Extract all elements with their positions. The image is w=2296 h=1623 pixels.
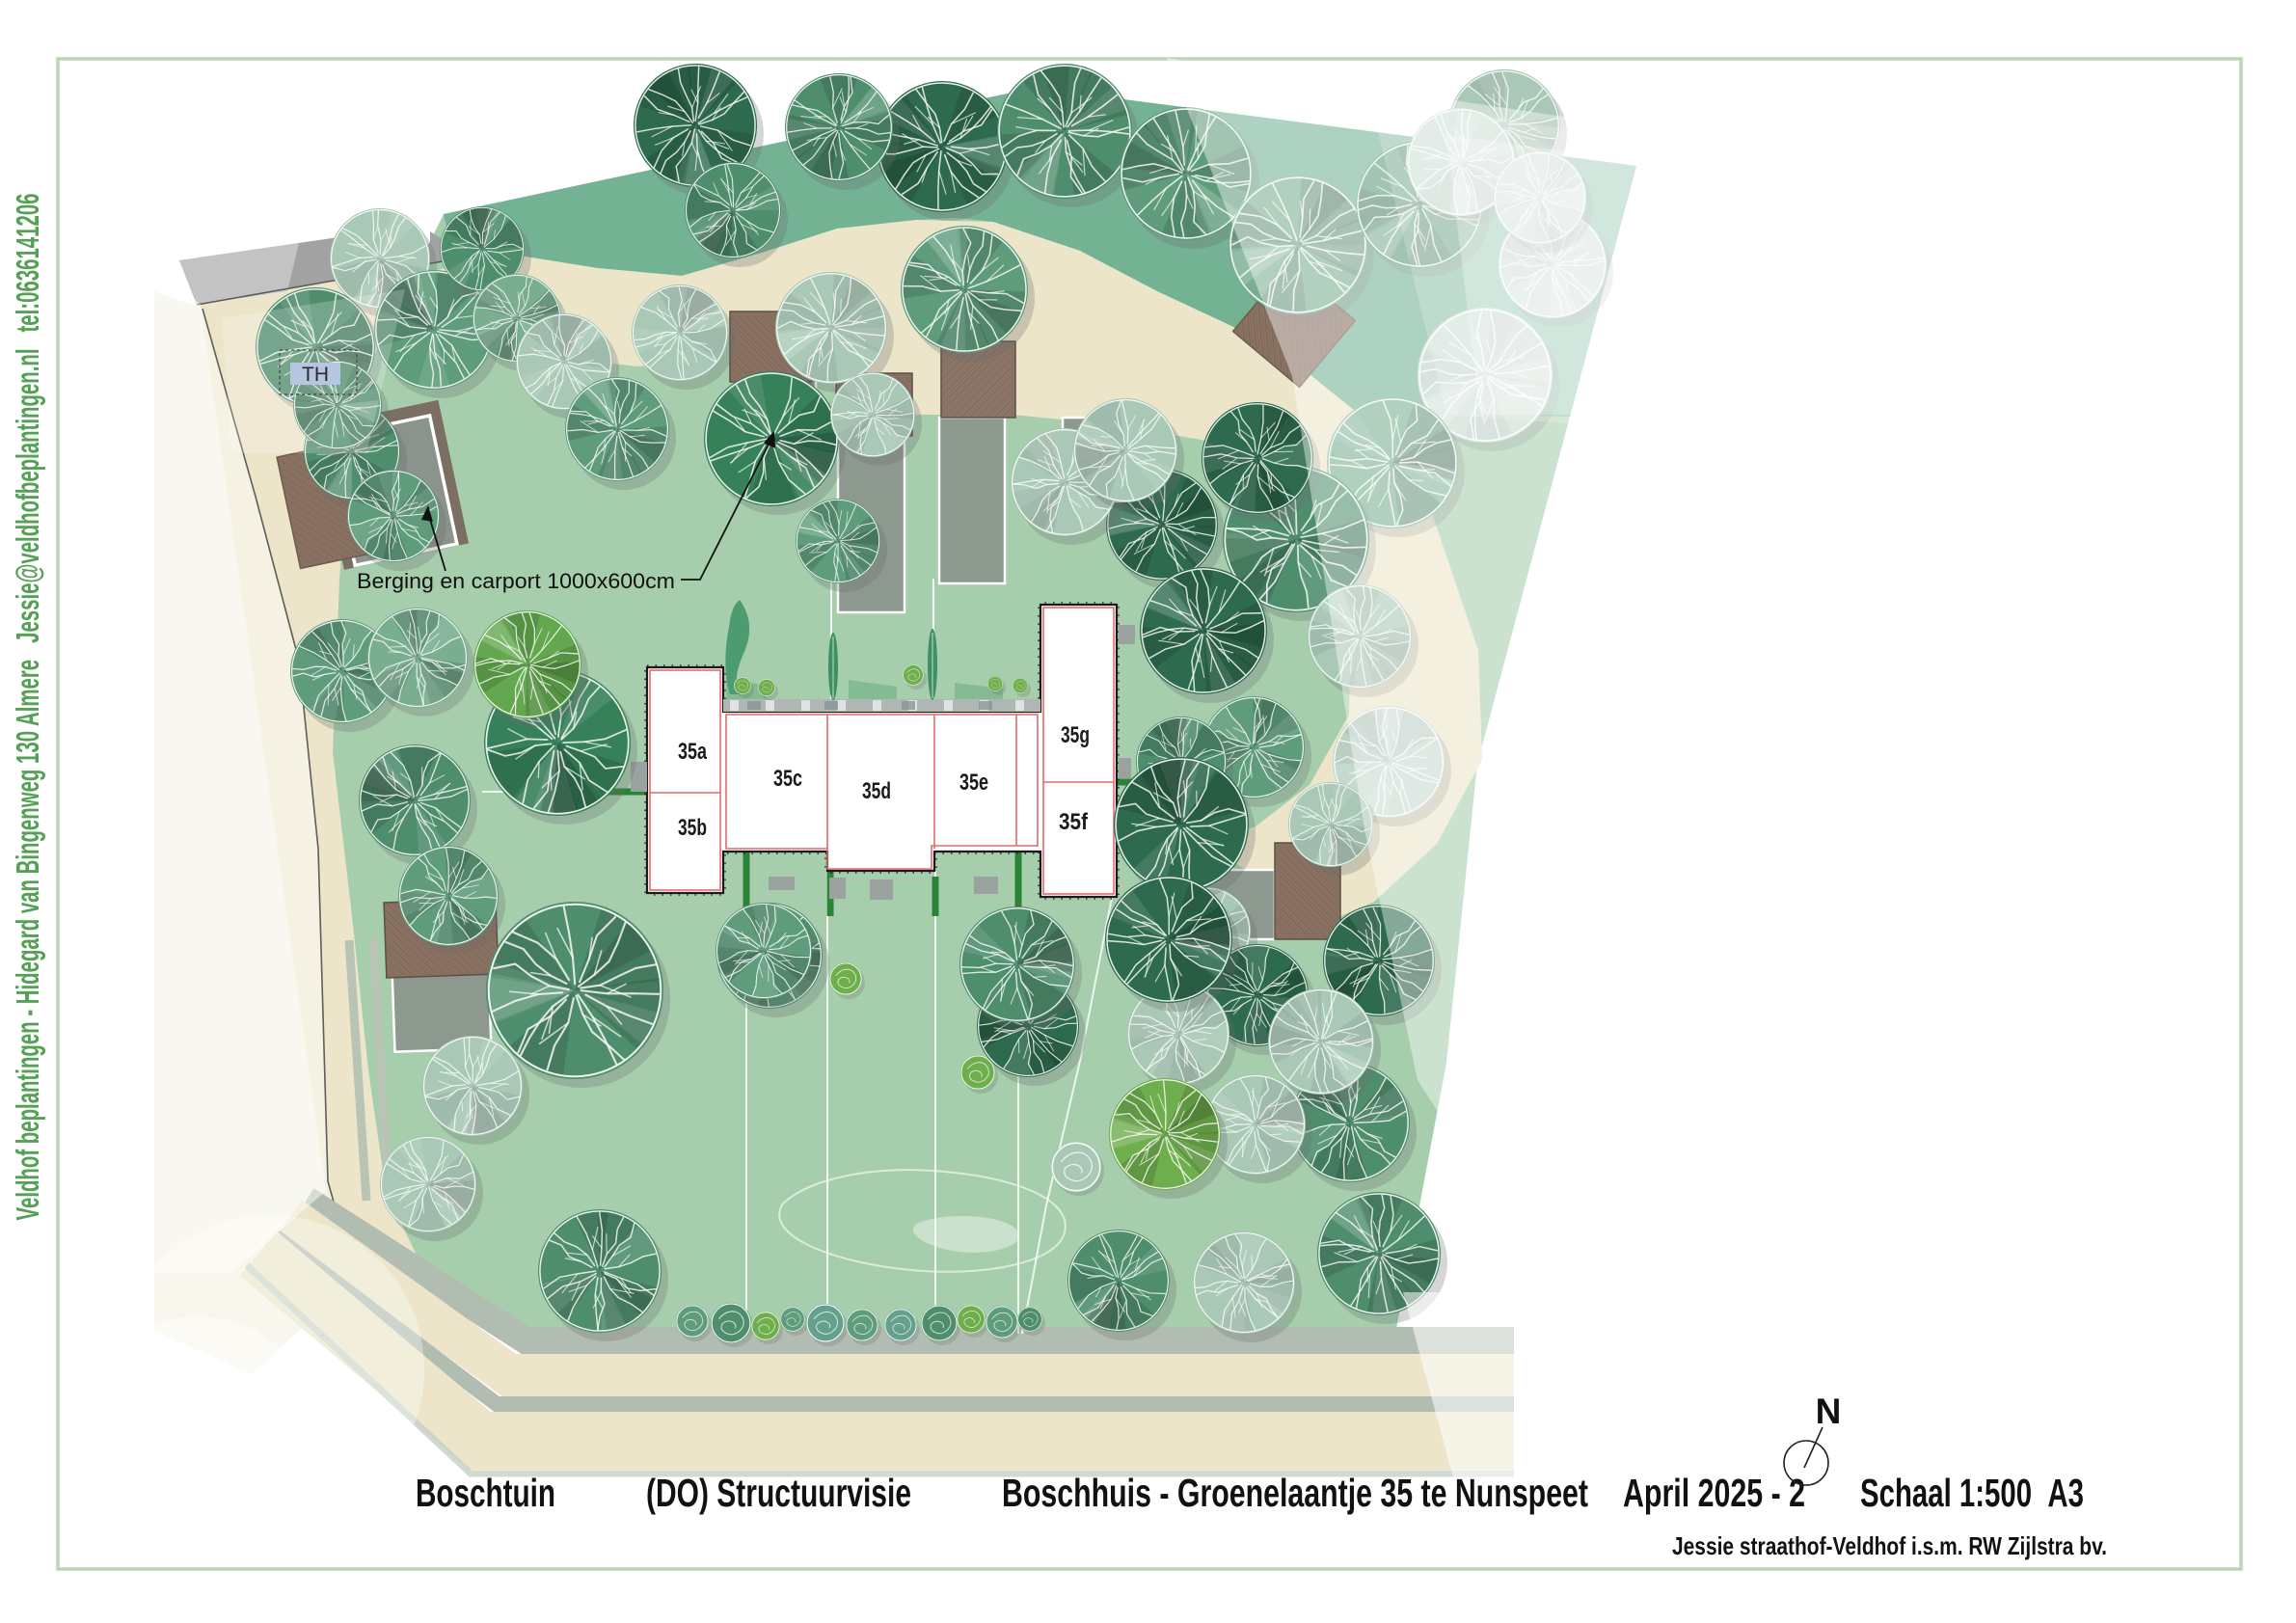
svg-text:April 2025 - 2: April 2025 - 2	[1623, 1471, 1805, 1515]
svg-text:Schaal 1:500 A3: Schaal 1:500 A3	[1860, 1471, 2084, 1515]
svg-text:35b: 35b	[678, 815, 707, 841]
svg-text:Berging en carport 1000x600cm: Berging en carport 1000x600cm	[357, 569, 675, 593]
svg-text:Veldhof beplantingen - Hidegar: Veldhof beplantingen - Hidegard van Bing…	[10, 194, 45, 1221]
svg-text:Jessie straathof-Veldhof i.s.m: Jessie straathof-Veldhof i.s.m. RW Zijls…	[1672, 1531, 2107, 1560]
svg-text:Boschhuis - Groenelaantje 35 t: Boschhuis - Groenelaantje 35 te Nunspeet	[1002, 1471, 1588, 1515]
svg-text:35e: 35e	[959, 770, 988, 796]
svg-text:35c: 35c	[773, 766, 802, 792]
svg-text:Boschtuin: Boschtuin	[416, 1471, 555, 1515]
svg-text:35f: 35f	[1059, 809, 1089, 835]
svg-text:TH: TH	[302, 364, 329, 386]
svg-text:N: N	[1816, 1392, 1842, 1431]
svg-text:35d: 35d	[862, 778, 891, 804]
svg-text:(DO) Structuurvisie: (DO) Structuurvisie	[646, 1471, 911, 1515]
svg-text:35g: 35g	[1061, 722, 1090, 748]
svg-text:35a: 35a	[678, 739, 707, 765]
